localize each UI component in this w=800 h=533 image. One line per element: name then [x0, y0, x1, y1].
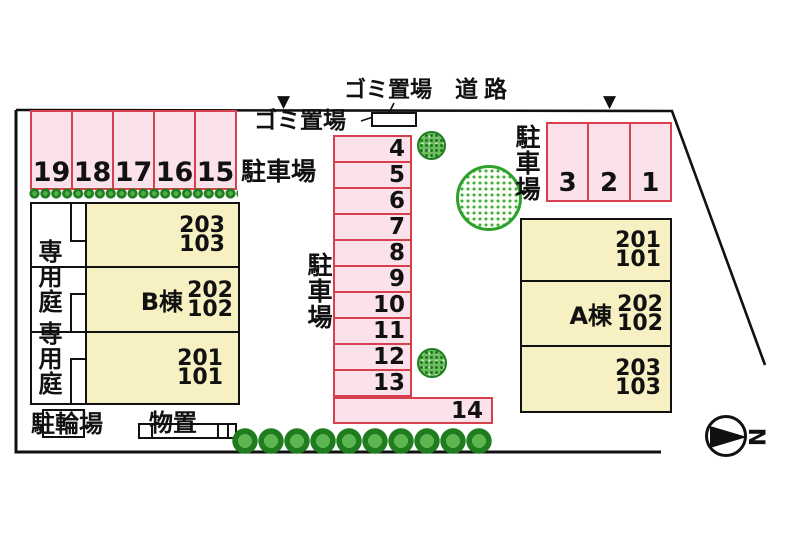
- storage-label: 物置: [149, 411, 197, 435]
- parking-block-left: 19 18 17 16 15: [30, 110, 237, 190]
- road-label: 道路: [455, 79, 513, 102]
- parking-space: 6: [335, 187, 410, 213]
- private-garden-label-top: 専用庭: [36, 239, 60, 321]
- parking-space: 10: [335, 291, 410, 317]
- unit-number: 101: [177, 368, 223, 387]
- benchmark-marker-right-icon: ▼: [603, 94, 616, 111]
- divider: [227, 425, 229, 437]
- parking-space: 12: [335, 343, 410, 369]
- parking-space: 7: [335, 213, 410, 239]
- parking-space: 5: [335, 161, 410, 187]
- building-a-section-mid: A棟 202 102: [522, 282, 670, 347]
- building-a-name: A棟: [569, 296, 612, 331]
- parking-space: 8: [335, 239, 410, 265]
- entry-step-line: [70, 240, 85, 242]
- building-b-name: B棟: [141, 282, 183, 317]
- parking-space: 17: [112, 112, 153, 188]
- parking-area-label-right: 駐車場: [514, 124, 539, 206]
- parking-space: 18: [71, 112, 112, 188]
- tree-icon: [417, 348, 447, 378]
- unit-number: 102: [187, 300, 233, 319]
- parking-space: 3: [548, 124, 587, 200]
- entry-step-line: [70, 358, 85, 360]
- building-a-block: 201 101 A棟 202 102 203 103: [520, 218, 672, 413]
- bicycle-parking-label: 駐輪場: [31, 412, 103, 436]
- parking-space: 9: [335, 265, 410, 291]
- building-b-section-mid: B棟 202 102: [87, 268, 238, 331]
- north-arrow-icon: [710, 426, 747, 448]
- unit-number: 103: [615, 378, 661, 397]
- divider: [32, 266, 238, 268]
- hedge-row: [29, 188, 238, 199]
- parking-space: 11: [335, 317, 410, 343]
- parking-space: 16: [153, 112, 194, 188]
- parking-block-right: 3 2 1: [546, 122, 672, 202]
- building-a-section-bottom: 203 103: [522, 347, 670, 409]
- private-garden-label-bottom: 専用庭: [36, 321, 60, 403]
- building-a-section-top: 201 101: [522, 220, 670, 282]
- unit-number: 102: [617, 314, 663, 333]
- parking-space: 15: [194, 112, 235, 188]
- entry-step-line: [70, 293, 72, 331]
- entry-step-line: [70, 293, 85, 295]
- unit-number: 101: [615, 250, 661, 269]
- unit-number: 103: [179, 235, 225, 254]
- garbage-area-label-side: ゴミ置場: [254, 110, 346, 133]
- garbage-box: [371, 112, 417, 127]
- building-b-section-bottom: 201 101: [87, 333, 238, 403]
- site-plan: ゴミ置場 道路 ゴミ置場 ▼ ▼ 19 18 17 16 15 駐車場 203 …: [0, 0, 800, 533]
- divider: [32, 331, 238, 333]
- building-b-section-top: 203 103: [87, 204, 238, 266]
- parking-space: 13: [335, 369, 410, 395]
- entry-step-line: [70, 358, 72, 403]
- entry-step-line: [70, 204, 72, 242]
- parking-area-label-center: 駐車場: [306, 252, 331, 334]
- compass-north-letter: N: [744, 428, 766, 446]
- parking-space: 1: [629, 124, 670, 200]
- parking-block-center: 4 5 6 7 8 9 10 11 12 13: [333, 135, 412, 397]
- parking-area-label-left: 駐車場: [241, 159, 316, 184]
- bush-row: [232, 427, 492, 455]
- divider: [217, 425, 219, 437]
- tree-icon: [417, 131, 446, 160]
- parking-space-14: 14: [333, 397, 493, 424]
- parking-space: 19: [32, 112, 71, 188]
- parking-space: 2: [587, 124, 628, 200]
- garbage-area-label-top: ゴミ置場: [344, 80, 432, 102]
- benchmark-marker-left-icon: ▼: [277, 94, 290, 111]
- parking-space: 4: [335, 137, 410, 161]
